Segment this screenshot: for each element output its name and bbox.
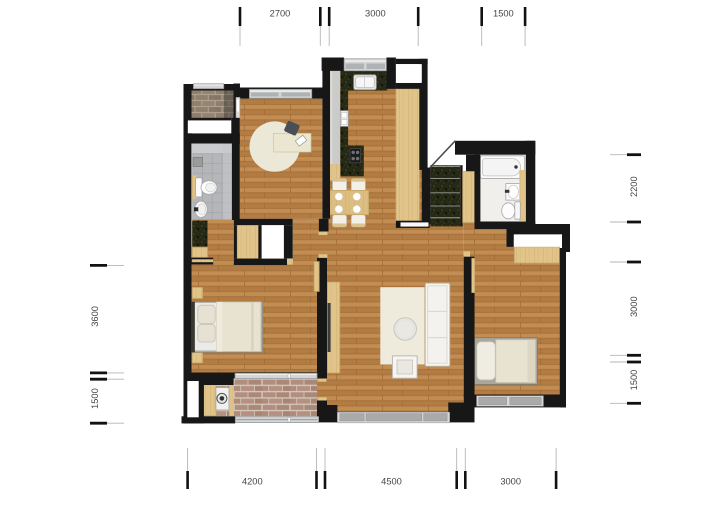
svg-text:2200: 2200: [629, 176, 639, 197]
svg-text:3600: 3600: [90, 306, 100, 327]
svg-text:4200: 4200: [242, 477, 263, 487]
svg-text:3000: 3000: [500, 477, 521, 487]
svg-text:1500: 1500: [90, 388, 100, 409]
svg-text:1500: 1500: [629, 370, 639, 391]
svg-text:1500: 1500: [493, 8, 514, 18]
svg-text:3000: 3000: [365, 8, 386, 18]
svg-text:4500: 4500: [381, 477, 402, 487]
svg-text:2700: 2700: [270, 8, 291, 18]
svg-text:3000: 3000: [629, 296, 639, 317]
